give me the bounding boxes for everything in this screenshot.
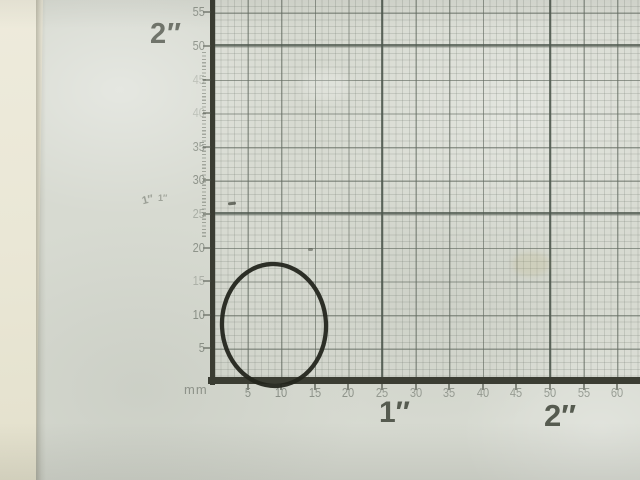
x-axis-number-60: 60 — [611, 387, 623, 400]
y-axis-number-25: 25 — [181, 208, 205, 221]
rubber-o-ring — [216, 259, 332, 391]
inch-label-2in-horizontal: 2″ — [544, 398, 576, 434]
y-axis-number-5: 5 — [181, 342, 205, 355]
x-axis-number-40: 40 — [477, 387, 489, 400]
photo-of-oring-on-mm-grid: 5101520253035404550556051015202530354045… — [0, 0, 640, 480]
y-axis-number-45: 45 — [181, 73, 205, 86]
y-axis-number-55: 55 — [181, 6, 205, 19]
y-axis-number-40: 40 — [181, 107, 205, 120]
o-ring-outline — [219, 261, 329, 388]
x-axis-number-55: 55 — [577, 387, 589, 400]
y-axis-number-20: 20 — [181, 241, 205, 254]
paper-speck — [308, 248, 313, 251]
x-axis-number-20: 20 — [342, 387, 354, 400]
y-axis-number-35: 35 — [181, 140, 205, 153]
mm-unit-label: mm — [184, 382, 208, 397]
paper-stain — [512, 252, 550, 276]
inch-label-1in-horizontal: 1″ — [379, 396, 410, 430]
x-axis-number-30: 30 — [409, 387, 421, 400]
x-axis-number-35: 35 — [443, 387, 455, 400]
y-axis-number-10: 10 — [181, 308, 205, 321]
x-axis-number-45: 45 — [510, 387, 522, 400]
y-axis-number-30: 30 — [181, 174, 205, 187]
paper-highlight — [300, 70, 350, 100]
inch-label-2in-vertical: 2″ — [150, 18, 182, 51]
y-axis-number-15: 15 — [181, 275, 205, 288]
inch-label-1in-vertical-faint-echo: 1″ — [158, 193, 167, 203]
y-axis-number-50: 50 — [181, 40, 205, 53]
